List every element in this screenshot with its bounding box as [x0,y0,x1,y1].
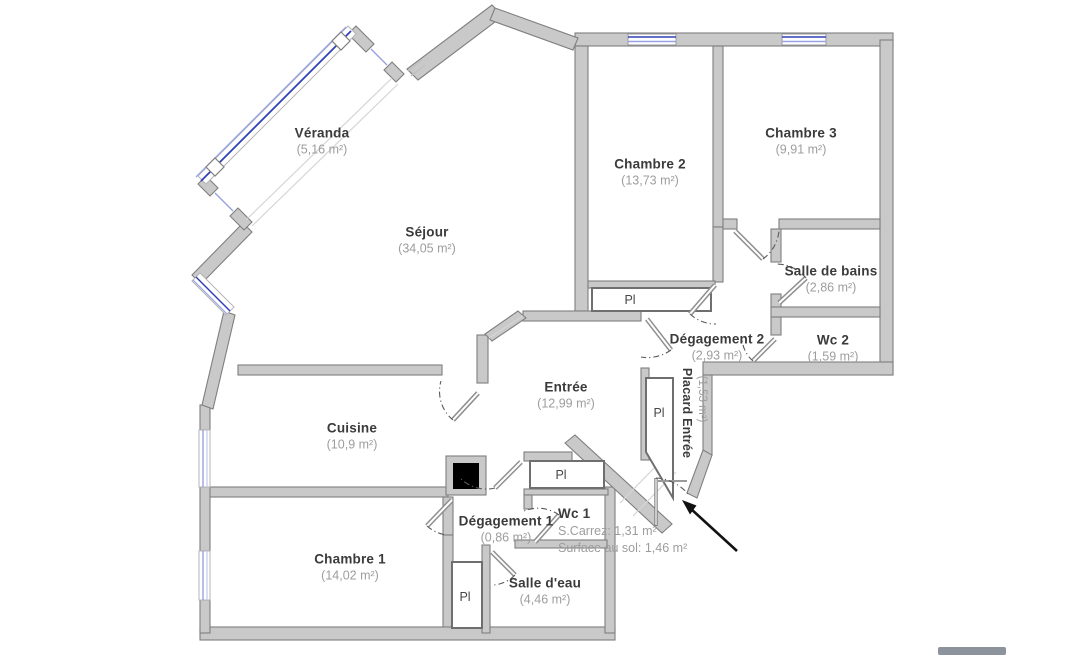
floor-plan-canvas: Véranda (5,16 m²) Séjour (34,05 m²) Cham… [0,0,1065,655]
room-label-placard-entree: Placard Entrée [678,368,696,458]
closet-label-wc1: Pl [555,468,566,482]
room-label-cuisine: Cuisine (10,9 m²) [327,421,378,452]
room-label-chambre1: Chambre 1 (14,02 m²) [314,552,386,583]
room-label-entree: Entrée (12,99 m²) [537,380,595,411]
entrance-arrow-icon [682,500,737,551]
room-label-sejour: Séjour (34,05 m²) [398,225,456,256]
room-label-chambre3: Chambre 3 (9,91 m²) [765,126,837,157]
room-label-degagement1: Dégagement 1 (0,86 m²) [459,514,554,545]
closet-label-salle-deau: Pl [459,590,470,604]
room-label-wc1: Wc 1 S.Carrez: 1,31 m² Surface au sol: 1… [558,506,687,555]
room-label-veranda: Véranda (5,16 m²) [295,126,350,157]
room-label-degagement2: Dégagement 2 (2,93 m²) [670,332,765,363]
watermark-fragment [938,647,1006,655]
wc1-floor-area: Surface au sol: 1,46 m² [558,541,687,555]
room-label-chambre2: Chambre 2 (13,73 m²) [614,157,686,188]
closet-label-placard-entree: Pl [653,406,664,420]
room-label-wc2: Wc 2 (1,59 m²) [808,333,859,364]
walls [192,5,893,640]
room-area-placard-entree: (1,53 m²) [696,376,708,423]
closet-label-chambre2: Pl [624,293,635,307]
room-label-salle-de-bains: Salle de bains (2,86 m²) [785,264,878,295]
room-label-salle-deau: Salle d'eau (4,46 m²) [509,576,581,607]
conduit [453,463,479,489]
floor-plan-drawing [0,0,1065,655]
wc1-carrez-area: S.Carrez: 1,31 m² [558,524,687,538]
